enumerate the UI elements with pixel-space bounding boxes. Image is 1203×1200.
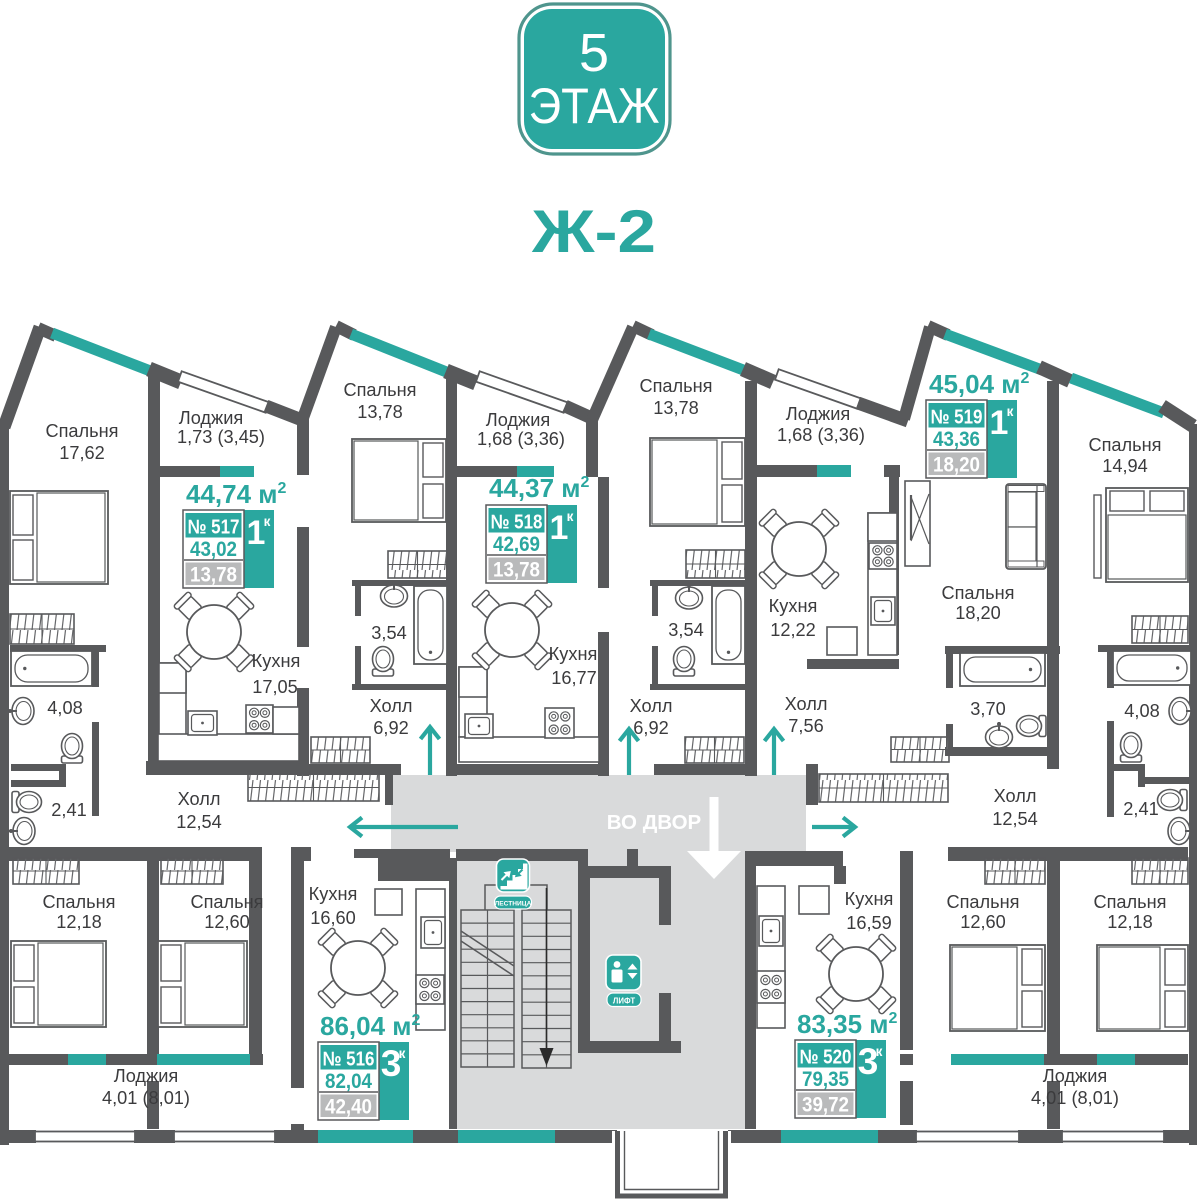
svg-text:Лоджия: Лоджия — [786, 404, 850, 424]
svg-text:Кухня: Кухня — [549, 644, 598, 664]
svg-text:Холл: Холл — [178, 789, 221, 809]
svg-text:к: к — [1007, 404, 1014, 419]
svg-text:Холл: Холл — [630, 696, 673, 716]
svg-text:12,22: 12,22 — [770, 620, 816, 640]
svg-text:Спальня: Спальня — [941, 583, 1014, 603]
svg-text:1,73 (3,45): 1,73 (3,45) — [177, 427, 265, 447]
svg-text:1,68 (3,36): 1,68 (3,36) — [777, 425, 865, 445]
svg-text:13,78: 13,78 — [190, 564, 237, 587]
svg-text:42,69: 42,69 — [493, 533, 540, 556]
svg-text:№ 516: № 516 — [323, 1049, 375, 1071]
svg-text:12,54: 12,54 — [176, 812, 222, 832]
svg-text:5: 5 — [579, 23, 609, 83]
svg-text:13,78: 13,78 — [653, 398, 699, 418]
svg-text:к: к — [399, 1046, 406, 1061]
svg-text:44,37 м2: 44,37 м2 — [489, 473, 590, 503]
svg-text:2,41: 2,41 — [51, 800, 86, 820]
svg-text:№ 520: № 520 — [800, 1047, 852, 1069]
svg-text:16,77: 16,77 — [551, 668, 597, 688]
svg-text:Спальня: Спальня — [639, 376, 712, 396]
svg-text:Спальня: Спальня — [42, 892, 115, 912]
svg-text:12,54: 12,54 — [992, 809, 1038, 829]
svg-text:ВО ДВОР: ВО ДВОР — [607, 811, 701, 834]
svg-text:Холл: Холл — [994, 786, 1037, 806]
svg-text:№ 518: № 518 — [491, 512, 543, 534]
svg-text:16,60: 16,60 — [310, 908, 356, 928]
svg-text:42,40: 42,40 — [325, 1096, 372, 1119]
svg-text:ЛЕСТНИЦА: ЛЕСТНИЦА — [495, 901, 532, 908]
svg-text:3,54: 3,54 — [668, 620, 703, 640]
svg-text:Кухня: Кухня — [845, 889, 894, 909]
svg-text:№ 519: № 519 — [931, 407, 983, 429]
svg-text:13,78: 13,78 — [357, 402, 403, 422]
svg-text:44,74 м2: 44,74 м2 — [186, 479, 287, 509]
svg-text:Ж-2: Ж-2 — [531, 198, 656, 265]
svg-text:17,62: 17,62 — [59, 443, 105, 463]
svg-text:к: к — [264, 514, 271, 529]
svg-text:Спальня: Спальня — [343, 380, 416, 400]
svg-text:к: к — [876, 1044, 883, 1059]
svg-text:1,68 (3,36): 1,68 (3,36) — [477, 429, 565, 449]
svg-text:Лоджия: Лоджия — [486, 410, 550, 430]
svg-text:4,08: 4,08 — [1124, 701, 1159, 721]
svg-text:18,20: 18,20 — [955, 603, 1001, 623]
svg-text:18,20: 18,20 — [933, 454, 980, 477]
svg-text:45,04 м2: 45,04 м2 — [929, 369, 1030, 399]
svg-text:1: 1 — [247, 514, 266, 552]
svg-text:6,92: 6,92 — [633, 718, 668, 738]
svg-text:Спальня: Спальня — [946, 892, 1019, 912]
svg-text:3,54: 3,54 — [371, 623, 406, 643]
svg-text:Холл: Холл — [370, 696, 413, 716]
svg-text:Спальня: Спальня — [45, 421, 118, 441]
svg-text:4,01 (8,01): 4,01 (8,01) — [1031, 1088, 1119, 1108]
svg-text:Спальня: Спальня — [1088, 435, 1161, 455]
svg-text:12,60: 12,60 — [204, 912, 250, 932]
svg-text:2,41: 2,41 — [1123, 799, 1158, 819]
svg-text:Лоджия: Лоджия — [114, 1066, 178, 1086]
svg-text:1: 1 — [990, 404, 1009, 442]
svg-text:ЭТАЖ: ЭТАЖ — [529, 78, 660, 134]
svg-text:43,36: 43,36 — [933, 428, 980, 451]
svg-text:7,56: 7,56 — [788, 716, 823, 736]
svg-text:1: 1 — [550, 509, 569, 547]
svg-text:4,08: 4,08 — [47, 698, 82, 718]
svg-text:№ 517: № 517 — [188, 517, 240, 539]
svg-text:13,78: 13,78 — [493, 559, 540, 582]
svg-text:Лоджия: Лоджия — [1043, 1066, 1107, 1086]
svg-text:Кухня: Кухня — [309, 884, 358, 904]
svg-text:Кухня: Кухня — [769, 596, 818, 616]
svg-text:Кухня: Кухня — [252, 651, 301, 671]
svg-text:12,18: 12,18 — [1107, 912, 1153, 932]
svg-text:к: к — [567, 509, 574, 524]
svg-text:17,05: 17,05 — [252, 677, 298, 697]
svg-text:39,72: 39,72 — [802, 1094, 849, 1117]
svg-text:3,70: 3,70 — [970, 699, 1005, 719]
svg-text:6,92: 6,92 — [373, 718, 408, 738]
svg-text:12,18: 12,18 — [56, 912, 102, 932]
svg-text:14,94: 14,94 — [1102, 456, 1148, 476]
svg-text:Лоджия: Лоджия — [179, 408, 243, 428]
svg-text:16,59: 16,59 — [846, 913, 892, 933]
svg-text:Спальня: Спальня — [190, 892, 263, 912]
svg-text:12,60: 12,60 — [960, 912, 1006, 932]
svg-text:43,02: 43,02 — [190, 538, 237, 561]
svg-text:ЛИФТ: ЛИФТ — [613, 997, 635, 1006]
svg-text:Холл: Холл — [785, 694, 828, 714]
svg-text:4,01 (8,01): 4,01 (8,01) — [102, 1088, 190, 1108]
svg-text:79,35: 79,35 — [802, 1068, 849, 1091]
svg-text:Спальня: Спальня — [1093, 892, 1166, 912]
svg-text:83,35 м2: 83,35 м2 — [797, 1009, 898, 1039]
svg-text:82,04: 82,04 — [325, 1070, 372, 1093]
svg-text:86,04 м2: 86,04 м2 — [320, 1011, 421, 1041]
